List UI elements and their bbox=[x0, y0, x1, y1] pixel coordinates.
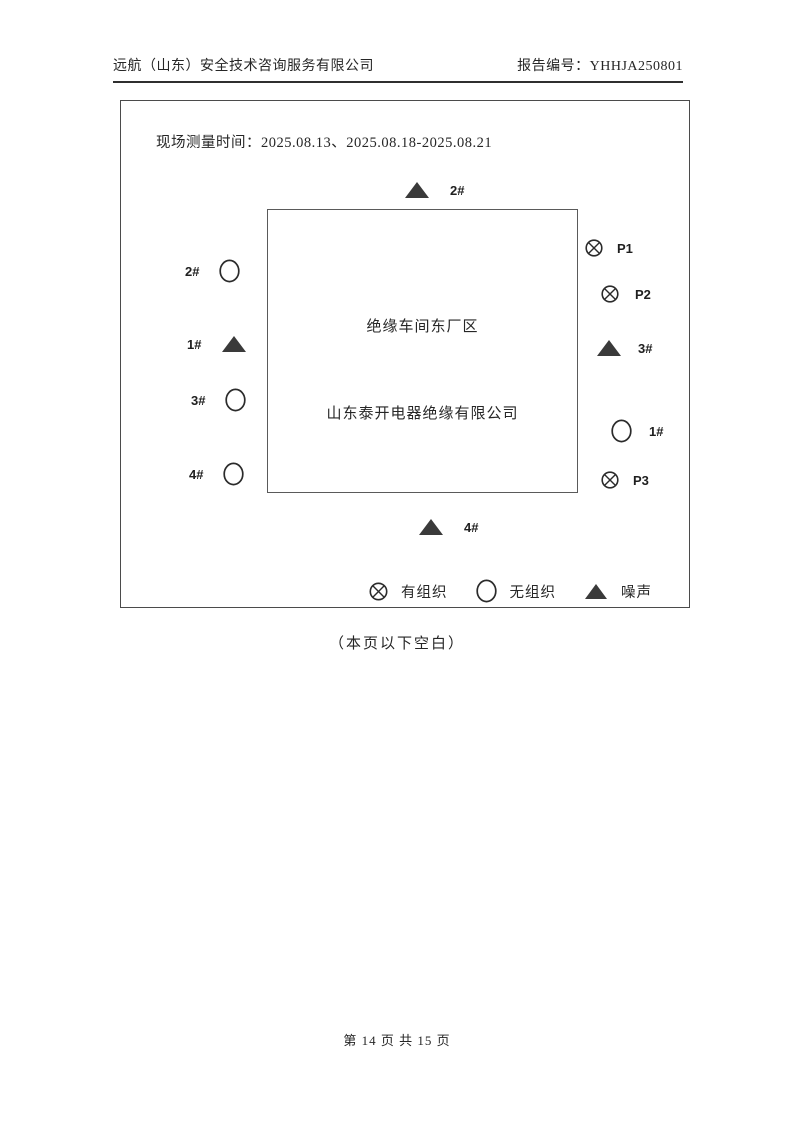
diagram-frame: 现场测量时间：2025.08.13、2025.08.18-2025.08.21 … bbox=[120, 100, 690, 608]
marker-label: 4# bbox=[464, 520, 478, 535]
organized-cross-circle-icon bbox=[601, 471, 619, 489]
measure-time-label: 现场测量时间：2025.08.13、2025.08.18-2025.08.21 bbox=[156, 131, 492, 152]
marker-right-organized-p2: P2 bbox=[601, 285, 651, 303]
plant-area-rect: 绝缘车间东厂区 山东泰开电器绝缘有限公司 bbox=[267, 209, 578, 493]
organized-cross-circle-icon bbox=[601, 285, 619, 303]
legend-item-noise: 噪声 bbox=[584, 581, 652, 602]
marker-label: P2 bbox=[635, 287, 651, 302]
marker-label: 1# bbox=[187, 337, 201, 352]
header-company-name: 远航（山东）安全技术咨询服务有限公司 bbox=[113, 55, 374, 75]
marker-left-unorganized-2: 2# bbox=[185, 259, 240, 283]
marker-top-noise: 2# bbox=[404, 181, 464, 199]
page-header: 远航（山东）安全技术咨询服务有限公司 报告编号：YHHJA250801 bbox=[113, 55, 683, 83]
noise-triangle-icon bbox=[596, 339, 622, 357]
unorganized-circle-icon bbox=[476, 579, 497, 603]
organized-cross-circle-icon bbox=[585, 239, 603, 257]
legend-label-unorganized: 无组织 bbox=[510, 581, 557, 602]
noise-triangle-icon bbox=[418, 518, 444, 536]
marker-label: P3 bbox=[633, 473, 649, 488]
legend-label-noise: 噪声 bbox=[621, 581, 652, 602]
legend-item-organized: 有组织 bbox=[369, 581, 448, 602]
unorganized-circle-icon bbox=[611, 419, 632, 443]
noise-triangle-icon bbox=[584, 583, 608, 600]
marker-label: 3# bbox=[638, 341, 652, 356]
header-report-number: 报告编号：YHHJA250801 bbox=[517, 55, 683, 75]
marker-label: 2# bbox=[185, 264, 199, 279]
marker-right-organized-p3: P3 bbox=[601, 471, 649, 489]
marker-label: 1# bbox=[649, 424, 663, 439]
diagram-legend: 有组织 无组织 噪声 bbox=[369, 579, 652, 603]
noise-triangle-icon bbox=[221, 335, 247, 353]
blank-below-note: （本页以下空白） bbox=[0, 632, 794, 653]
marker-label: P1 bbox=[617, 241, 633, 256]
plant-area-label: 绝缘车间东厂区 bbox=[268, 315, 577, 336]
legend-label-organized: 有组织 bbox=[401, 581, 448, 602]
marker-left-unorganized-3: 3# bbox=[191, 388, 246, 412]
marker-label: 4# bbox=[189, 467, 203, 482]
unorganized-circle-icon bbox=[219, 259, 240, 283]
legend-item-unorganized: 无组织 bbox=[476, 579, 557, 603]
page-number: 第 14 页 共 15 页 bbox=[0, 1030, 794, 1049]
report-page: 远航（山东）安全技术咨询服务有限公司 报告编号：YHHJA250801 现场测量… bbox=[0, 0, 794, 1122]
marker-right-organized-p1: P1 bbox=[585, 239, 633, 257]
marker-left-noise-1: 1# bbox=[187, 335, 247, 353]
unorganized-circle-icon bbox=[223, 462, 244, 486]
unorganized-circle-icon bbox=[225, 388, 246, 412]
marker-left-unorganized-4: 4# bbox=[189, 462, 244, 486]
plant-company-label: 山东泰开电器绝缘有限公司 bbox=[268, 402, 577, 423]
marker-label: 2# bbox=[450, 183, 464, 198]
organized-cross-circle-icon bbox=[369, 582, 388, 601]
marker-label: 3# bbox=[191, 393, 205, 408]
marker-bottom-noise: 4# bbox=[418, 518, 478, 536]
marker-right-noise-3: 3# bbox=[596, 339, 652, 357]
noise-triangle-icon bbox=[404, 181, 430, 199]
marker-right-unorganized-1: 1# bbox=[611, 419, 663, 443]
